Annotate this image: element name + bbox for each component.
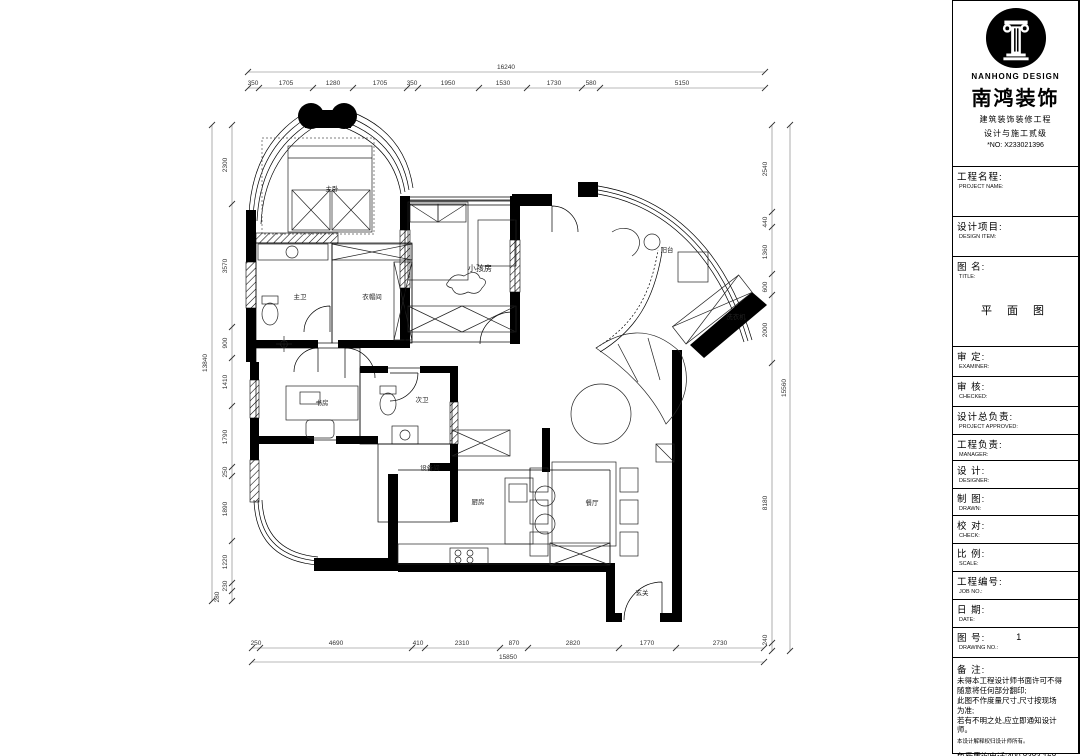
svg-text:1280: 1280 — [326, 80, 341, 87]
field-job-no: 工程编号: JOB NO.: — [953, 572, 1078, 600]
svg-text:230: 230 — [222, 580, 229, 591]
room-label-utility: 设备间 — [420, 463, 440, 472]
brand-cert-no: *NO: X233021396 — [957, 142, 1074, 149]
svg-text:1705: 1705 — [279, 80, 294, 87]
room-label-foyer: 玄关 — [636, 588, 650, 597]
floor-plan-area: 16240 350 1705 1280 1705 350 1950 1530 1… — [0, 0, 950, 756]
field-date: 日 期: DATE: — [953, 600, 1078, 628]
nanhong-logo-icon — [985, 7, 1047, 69]
svg-text:1730: 1730 — [547, 80, 562, 87]
drawing-no-value: 1 — [1016, 632, 1021, 642]
field-examiner: 审 定: EXAMINER: — [953, 347, 1078, 377]
field-drawing-no: 图 号: DRAWING NO.: 1 — [953, 628, 1078, 658]
svg-text:1360: 1360 — [762, 244, 769, 259]
brand-name-en: NANHONG DESIGN — [957, 72, 1074, 81]
svg-text:900: 900 — [222, 337, 229, 348]
svg-text:2310: 2310 — [455, 640, 470, 647]
room-label-balcony: 阳台 — [661, 245, 674, 254]
room-outlines — [256, 200, 610, 563]
room-label-washer: 洗衣机 — [726, 312, 746, 321]
field-project-name: 工程名程: PROJECT NAME: — [953, 167, 1078, 217]
svg-text:2540: 2540 — [762, 161, 769, 176]
svg-text:2300: 2300 — [222, 157, 229, 172]
svg-text:1220: 1220 — [222, 554, 229, 569]
field-check: 校 对: CHECK: — [953, 516, 1078, 544]
field-drawn: 制 图: DRAWN: — [953, 489, 1078, 516]
svg-text:2000: 2000 — [762, 322, 769, 337]
dimension-lines — [209, 69, 793, 665]
floor-plan-svg: 16240 350 1705 1280 1705 350 1950 1530 1… — [0, 0, 950, 756]
svg-text:580: 580 — [586, 80, 597, 87]
room-label-study: 书房 — [316, 398, 329, 407]
drawing-sheet: 16240 350 1705 1280 1705 350 1950 1530 1… — [0, 0, 1080, 756]
svg-text:600: 600 — [762, 281, 769, 292]
brand-cert-line2: 设计与施工贰级 — [957, 128, 1074, 139]
svg-text:870: 870 — [509, 640, 520, 647]
field-designer: 设 计: DESIGNER: — [953, 461, 1078, 489]
svg-text:350: 350 — [407, 80, 418, 87]
svg-text:5150: 5150 — [675, 80, 690, 87]
svg-text:16240: 16240 — [497, 64, 515, 71]
field-project-approved: 设计总负责: PROJECT APPROVED: — [953, 407, 1078, 435]
room-label-second-bath: 次卫 — [416, 395, 430, 404]
brand-block: NANHONG DESIGN 南鸿装饰 建筑装饰装修工程 设计与施工贰级 *NO… — [953, 1, 1078, 167]
svg-text:15850: 15850 — [499, 654, 517, 661]
field-checked: 审 核: CHECKED: — [953, 377, 1078, 407]
svg-text:2730: 2730 — [713, 640, 728, 647]
svg-text:15560: 15560 — [781, 379, 788, 397]
svg-text:250: 250 — [222, 466, 229, 477]
room-label-cloakroom: 衣帽间 — [362, 292, 382, 301]
svg-text:410: 410 — [413, 640, 424, 647]
svg-text:4690: 4690 — [329, 640, 344, 647]
svg-text:13840: 13840 — [202, 354, 209, 372]
field-drawing-title: 图 名: TITLE: 平 面 图 — [953, 257, 1078, 347]
brand-cert-line1: 建筑装饰装修工程 — [957, 114, 1074, 125]
room-label-kids-room: 小孩房 — [468, 263, 492, 273]
svg-text:2820: 2820 — [566, 640, 581, 647]
room-label-master-bedroom: 主卧 — [326, 184, 340, 193]
field-manager: 工程负责: MANAGER: — [953, 435, 1078, 461]
room-label-master-bath: 主卫 — [294, 292, 308, 301]
svg-text:440: 440 — [762, 216, 769, 227]
title-block: NANHONG DESIGN 南鸿装饰 建筑装饰装修工程 设计与施工贰级 *NO… — [952, 0, 1080, 754]
room-label-kitchen: 厨房 — [472, 497, 485, 506]
svg-text:3570: 3570 — [222, 258, 229, 273]
svg-text:240: 240 — [762, 634, 769, 645]
svg-text:350: 350 — [248, 80, 259, 87]
svg-text:1890: 1890 — [222, 501, 229, 516]
field-scale: 比 例: SCALE: — [953, 544, 1078, 572]
svg-text:8180: 8180 — [762, 495, 769, 510]
room-label-dining: 餐厅 — [586, 498, 600, 507]
svg-text:1530: 1530 — [496, 80, 511, 87]
svg-text:1950: 1950 — [441, 80, 456, 87]
drawing-title-value: 平 面 图 — [957, 302, 1074, 318]
svg-text:1705: 1705 — [373, 80, 388, 87]
remarks-block: 备 注: 未得本工程设计师书面许可不得 随意将任何部分翻印; 此图不作度量尺寸,… — [953, 658, 1078, 756]
hotline: 免费质询电话:400 8383 168 — [957, 751, 1074, 756]
copyright-line: 本设计解释权归设计师所有。 — [957, 737, 1074, 745]
svg-text:250: 250 — [251, 640, 262, 647]
svg-text:1790: 1790 — [222, 429, 229, 444]
svg-text:280: 280 — [214, 591, 221, 602]
svg-text:1410: 1410 — [222, 374, 229, 389]
svg-text:1770: 1770 — [640, 640, 655, 647]
field-design-item: 设计项目: DESIGN ITEM: — [953, 217, 1078, 257]
brand-name-cn: 南鸿装饰 — [957, 82, 1074, 111]
